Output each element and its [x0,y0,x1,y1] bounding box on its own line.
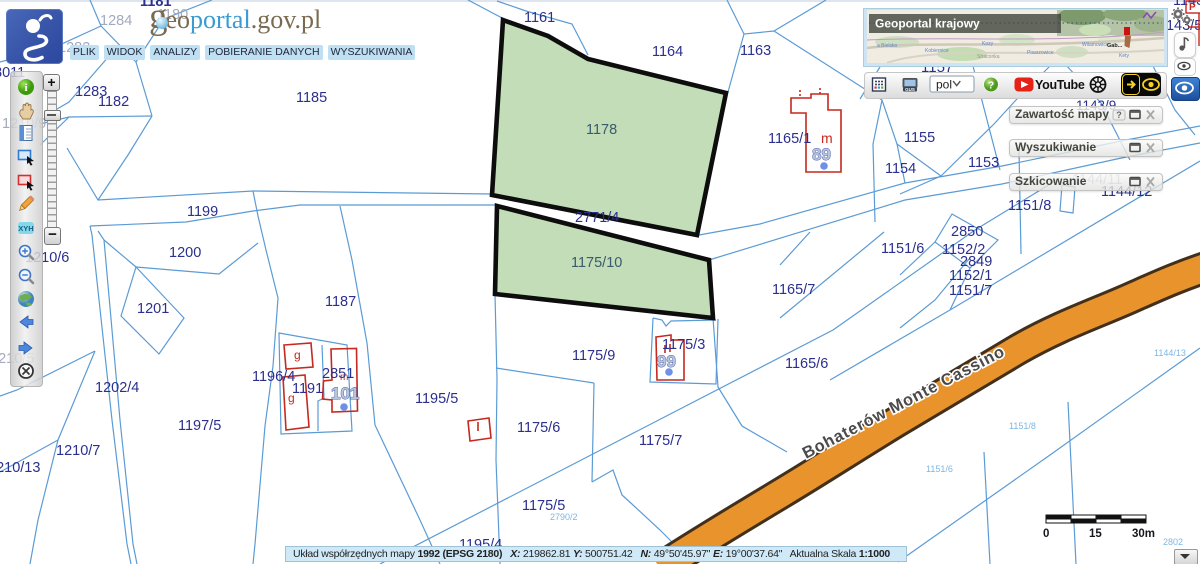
svg-text:1178: 1178 [586,122,617,138]
svg-text:1152/1: 1152/1 [949,268,992,284]
svg-text:1153: 1153 [968,155,999,171]
svg-text:1151/6: 1151/6 [881,241,924,257]
svg-text:1191: 1191 [292,381,323,397]
svg-text:1151/8: 1151/8 [1008,198,1051,214]
svg-text:89: 89 [812,145,831,164]
svg-text:1201: 1201 [137,301,169,317]
svg-text:1182: 1182 [98,94,129,110]
svg-text:?: ? [1116,110,1122,120]
svg-text:1199: 1199 [187,204,218,220]
svg-text:a Bielsko: a Bielsko [877,43,898,49]
svg-text:1187: 1187 [325,294,356,310]
svg-text:1175/10: 1175/10 [571,255,622,271]
svg-text:XYH: XYH [18,224,33,233]
svg-text:Bohaterów Monte Cassino: Bohaterów Monte Cassino [800,342,1008,462]
svg-text:g: g [294,348,301,362]
svg-text:GUS: GUS [905,87,915,92]
svg-text:Geoportal krajowy: Geoportal krajowy [875,17,980,31]
svg-text:2771/4: 2771/4 [575,210,619,226]
svg-text:30m: 30m [1132,528,1155,540]
svg-text:1161: 1161 [524,10,555,26]
svg-text:1195/5: 1195/5 [415,391,458,407]
svg-text:i: i [24,82,27,94]
svg-text:pol: pol [936,78,952,92]
svg-text:1284: 1284 [100,13,132,29]
svg-text:0: 0 [1043,528,1049,540]
svg-text:1202/4: 1202/4 [95,380,139,396]
svg-text:1175/7: 1175/7 [639,433,682,449]
svg-text:1175/9: 1175/9 [572,348,615,364]
svg-text:2850: 2850 [951,224,983,240]
svg-text:2802: 2802 [1163,537,1183,547]
svg-text:1165/6: 1165/6 [785,356,828,372]
svg-text:1165/7: 1165/7 [772,282,815,298]
svg-text:1154: 1154 [885,161,916,177]
svg-text:99: 99 [657,352,676,371]
svg-text:2790/2: 2790/2 [550,512,578,522]
svg-text:YouTube: YouTube [1035,78,1085,92]
svg-text:P: P [1189,2,1196,13]
svg-text:101: 101 [331,384,359,403]
svg-text:15: 15 [1089,528,1102,540]
svg-text:1151/7: 1151/7 [949,283,992,299]
svg-text:1151/8: 1151/8 [1009,421,1036,431]
svg-text:1197/5: 1197/5 [178,418,221,434]
svg-text:1151/6: 1151/6 [926,464,953,474]
svg-text:1185: 1185 [296,90,327,106]
svg-text:1175/3: 1175/3 [662,337,705,353]
svg-text:1163: 1163 [740,43,771,59]
svg-text:1165/1: 1165/1 [768,131,811,147]
svg-text:Pisarzowice: Pisarzowice [1027,50,1054,56]
svg-text:m: m [821,130,833,146]
svg-text:1175/6: 1175/6 [517,420,560,436]
svg-text:1155: 1155 [904,130,935,146]
svg-text:2851: 2851 [322,366,354,382]
svg-text:Kety: Kety [1119,53,1130,59]
svg-text:1210/7: 1210/7 [56,443,100,459]
svg-text:Straconka: Straconka [977,54,1000,60]
svg-text:Kozy: Kozy [982,41,994,47]
svg-text:1196/4: 1196/4 [252,369,295,385]
svg-text:1164: 1164 [652,44,683,60]
svg-text:Kobiernice: Kobiernice [925,48,949,54]
svg-text:1200: 1200 [169,245,201,261]
svg-text:1210/13: 1210/13 [0,460,40,476]
svg-text:Gab...: Gab... [1107,43,1123,49]
svg-text:Wilamowice: Wilamowice [1082,42,1109,48]
svg-text:1144/13: 1144/13 [1154,348,1186,358]
svg-text:?: ? [988,79,994,91]
